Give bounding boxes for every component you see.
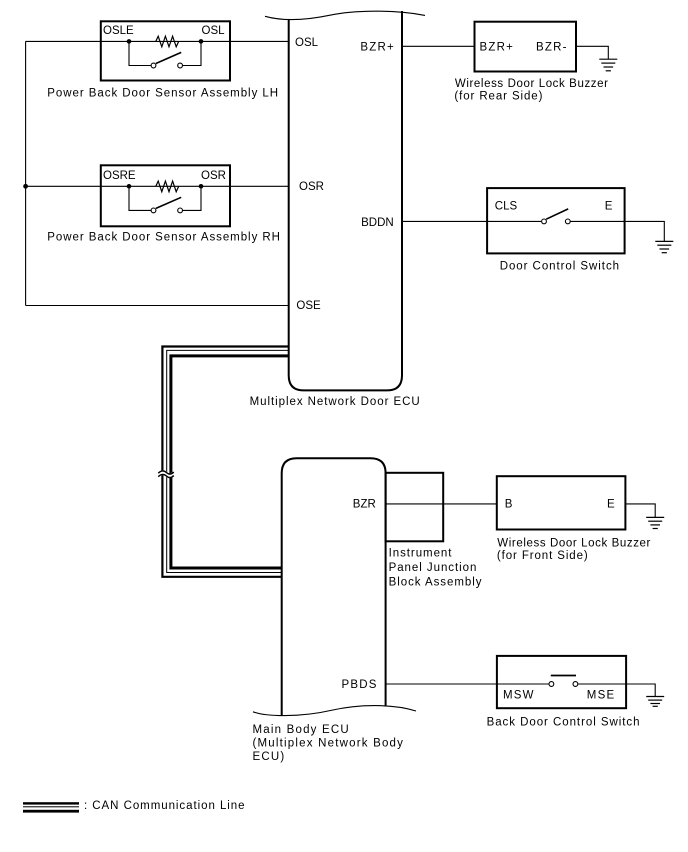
svg-text:Door Control Switch: Door Control Switch xyxy=(500,261,620,273)
svg-text:OSR: OSR xyxy=(299,181,324,193)
svg-text:BZR+: BZR+ xyxy=(360,42,395,54)
svg-text:OSL: OSL xyxy=(295,37,319,49)
svg-text:Instrument: Instrument xyxy=(389,548,453,560)
svg-text:Power Back Door Sensor Assembl: Power Back Door Sensor Assembly RH xyxy=(47,232,281,244)
svg-text:(for Front Side): (for Front Side) xyxy=(497,550,589,562)
svg-text:(Multiplex Network Body: (Multiplex Network Body xyxy=(253,737,405,749)
svg-text:(for Rear Side): (for Rear Side) xyxy=(454,91,543,103)
svg-text:MSW: MSW xyxy=(503,690,535,702)
svg-text:B: B xyxy=(505,499,513,511)
svg-text:CLS: CLS xyxy=(495,200,518,212)
svg-text:E: E xyxy=(607,499,615,511)
svg-text:OSE: OSE xyxy=(296,300,321,312)
svg-text:Wireless Door Lock Buzzer: Wireless Door Lock Buzzer xyxy=(497,538,651,550)
svg-text:Wireless Door Lock Buzzer: Wireless Door Lock Buzzer xyxy=(455,78,609,90)
svg-text:Power Back Door Sensor Assembl: Power Back Door Sensor Assembly LH xyxy=(47,88,279,100)
svg-text:Multiplex Network Door ECU: Multiplex Network Door ECU xyxy=(250,396,421,408)
svg-text:Panel Junction: Panel Junction xyxy=(389,562,478,574)
svg-text:OSR: OSR xyxy=(201,170,226,182)
svg-text:BDDN: BDDN xyxy=(361,217,394,229)
svg-text:OSRE: OSRE xyxy=(103,170,136,182)
svg-text:BZR: BZR xyxy=(353,499,376,511)
svg-text:BZR-: BZR- xyxy=(536,42,568,54)
svg-text:OSL: OSL xyxy=(202,25,226,37)
svg-text:: CAN Communication Line: : CAN Communication Line xyxy=(84,800,246,812)
svg-text:E: E xyxy=(605,200,613,212)
svg-text:ECU): ECU) xyxy=(253,751,286,763)
svg-text:PBDS: PBDS xyxy=(342,679,378,691)
svg-text:BZR+: BZR+ xyxy=(480,42,515,54)
svg-text:OSLE: OSLE xyxy=(103,25,134,37)
svg-text:Block Assembly: Block Assembly xyxy=(389,577,483,589)
svg-text:Main Body ECU: Main Body ECU xyxy=(253,724,350,736)
svg-text:Back Door Control Switch: Back Door Control Switch xyxy=(487,716,641,728)
svg-text:MSE: MSE xyxy=(587,690,616,702)
